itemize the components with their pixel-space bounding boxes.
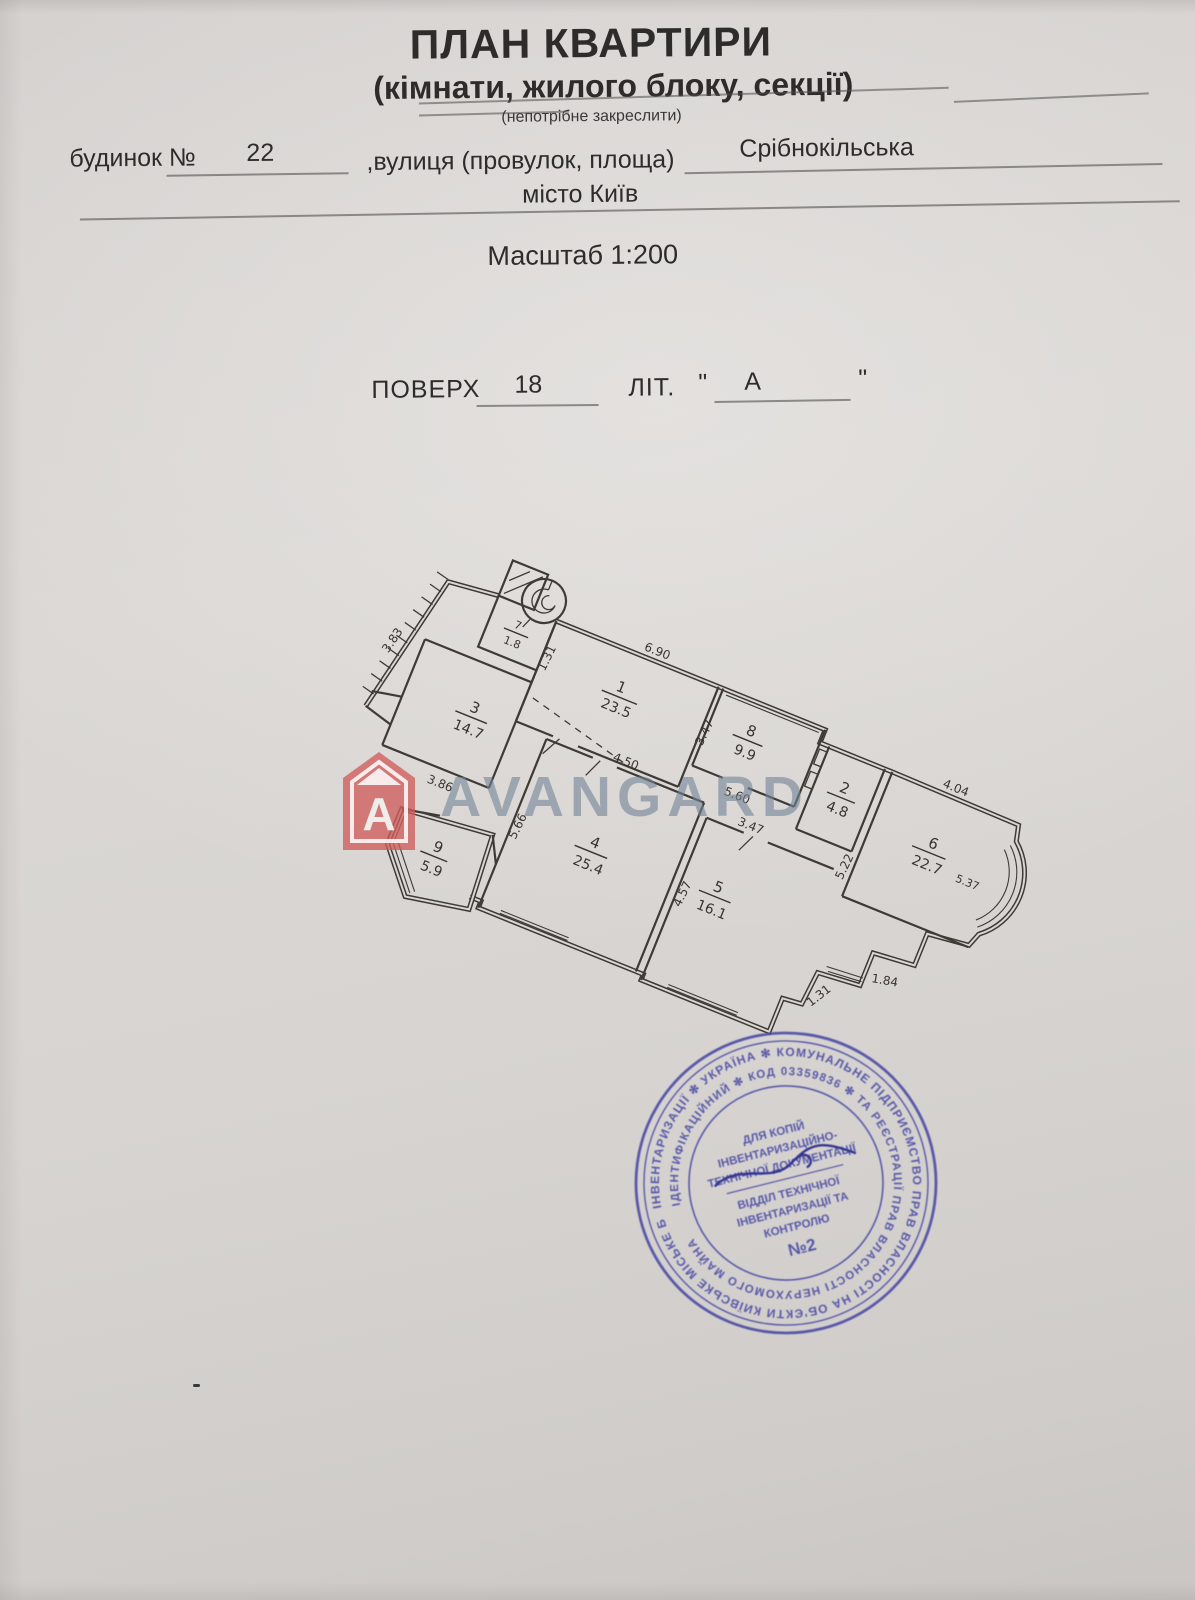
form-underline (685, 163, 1163, 174)
form-underline (715, 399, 851, 403)
scale-text: Масштаб 1:200 (0, 235, 1180, 276)
stamp-rotated-group: ІНВЕНТАРИЗАЦІЇ ✻ УКРАЇНА ✻ КОМУНАЛЬНЕ ПІ… (626, 1023, 946, 1343)
scanned-apartment-plan-page: 1 23.5 7 1.8 8 9.9 2 4.8 (0, 0, 1195, 1600)
form-underline (477, 404, 599, 407)
street-label: ,вулиця (провулок, площа) (366, 145, 674, 177)
street-value: Срібнокільська (739, 133, 914, 164)
stamp-center-text: ДЛЯ КОПІЙ ІНВЕНТАРИЗАЦІЙНО- ТЕХНІЧНОЇ ДО… (698, 1108, 879, 1275)
stamp-middle-ring-text: ІДЕНТИФІКАЦІЙНИЙ ✻ КОД 03359836 ✻ ТА РЕЄ… (644, 1041, 928, 1325)
letter-value: А (744, 368, 761, 397)
building-number-value: 22 (246, 139, 274, 168)
city-value: місто Київ (0, 175, 1178, 214)
svg-text:№2: №2 (786, 1235, 818, 1260)
form-header: ПЛАН КВАРТИРИ (кімнати, жилого блоку, се… (0, 0, 1195, 1600)
form-underline (167, 172, 349, 177)
floor-value: 18 (514, 370, 542, 399)
quote-open: " (698, 369, 707, 398)
letter-label: ЛІТ. (628, 373, 675, 402)
floor-label: ПОВЕРХ (371, 375, 480, 405)
building-label: будинок № (69, 143, 196, 173)
paper-speck (193, 1384, 200, 1387)
bti-round-stamp: ІНВЕНТАРИЗАЦІЇ ✻ УКРАЇНА ✻ КОМУНАЛЬНЕ ПІ… (626, 1023, 946, 1343)
quote-close: " (858, 365, 867, 394)
